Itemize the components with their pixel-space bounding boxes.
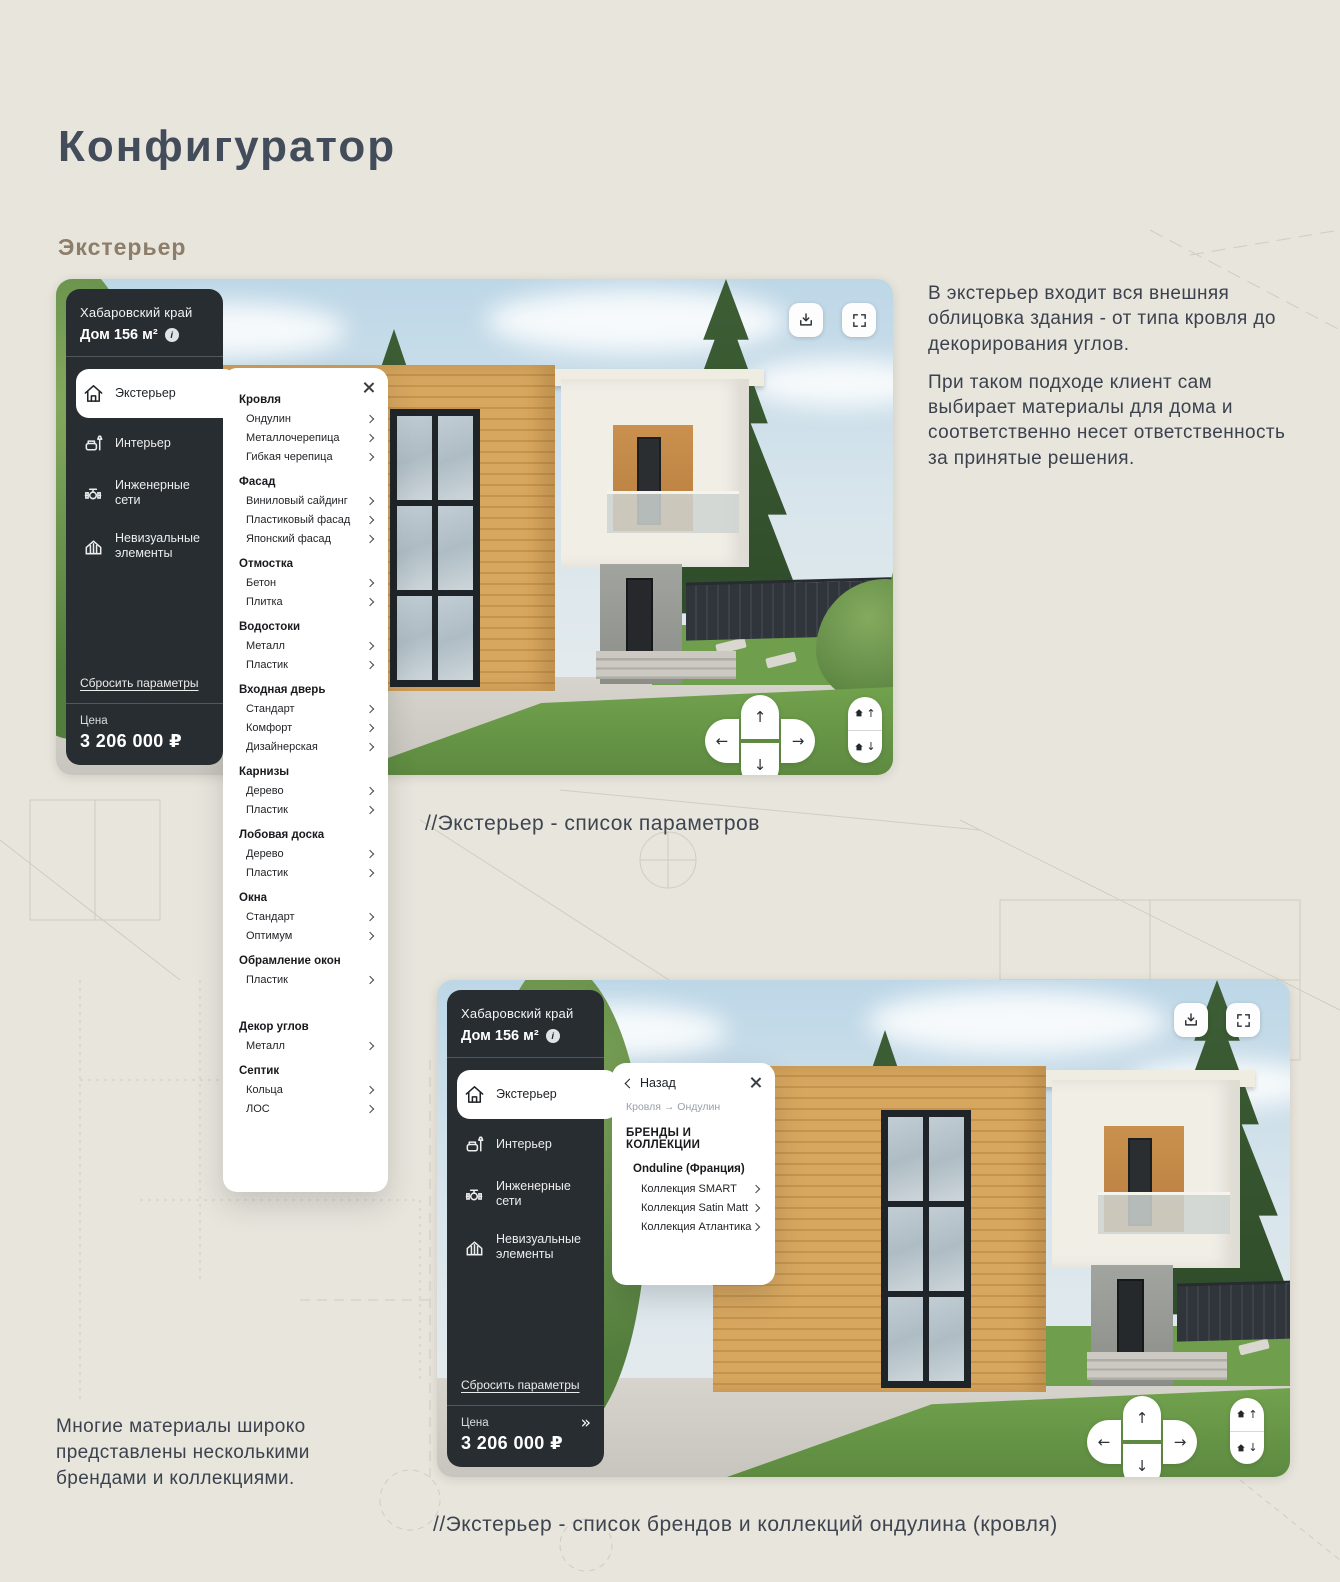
chevron-right-icon (366, 931, 374, 939)
chevron-right-icon (366, 433, 374, 441)
parameter-item-label: Металлочерепица (246, 432, 340, 444)
fullscreen-button[interactable] (842, 303, 876, 337)
left-arrow-icon: ← (716, 732, 729, 750)
brand-name: Onduline (Франция) (633, 1163, 761, 1175)
chevron-right-icon (366, 496, 374, 504)
sidebar-menu: ЭкстерьерИнтерьерИнженерные сетиНевизуал… (447, 1058, 604, 1271)
price-value: 3 206 000 ₽ (461, 1433, 590, 1454)
chevron-right-icon (366, 597, 374, 605)
parameter-item-label: Плитка (246, 596, 283, 608)
back-button[interactable]: Назад (626, 1076, 761, 1090)
parameter-item-label: Бетон (246, 577, 276, 589)
chevron-right-icon (366, 660, 374, 668)
parameter-section-title: Отмостка (239, 558, 375, 570)
chevron-right-icon (752, 1222, 760, 1230)
parameter-item[interactable]: Оптимум (239, 926, 375, 945)
chevron-right-icon (366, 912, 374, 920)
chevron-right-icon (366, 1085, 374, 1093)
entrance-steps (1087, 1352, 1227, 1380)
project-location: Хабаровский край (80, 305, 209, 320)
parameter-item[interactable]: Плитка (239, 592, 375, 611)
parameter-item-label: Дерево (246, 848, 284, 860)
floor-down-button[interactable]: ↓ (1230, 1431, 1264, 1465)
chevron-right-icon (366, 723, 374, 731)
chevron-right-icon (752, 1184, 760, 1192)
fullscreen-icon (1235, 1012, 1252, 1029)
presentation-page: Конфигуратор Экстерьер В экстерьер входи… (0, 0, 1340, 1582)
download-icon (797, 311, 815, 329)
house-icon (854, 742, 864, 752)
parameter-item[interactable]: Японский фасад (239, 529, 375, 548)
parameter-item[interactable]: Коллекция SMART (639, 1179, 761, 1198)
parameter-section-title: Входная дверь (239, 684, 375, 696)
parameter-item[interactable]: Стандарт (239, 699, 375, 718)
chevron-right-icon (366, 641, 374, 649)
floor-up-button[interactable]: ↑ (1230, 1398, 1264, 1431)
price-block: » Цена 3 206 000 ₽ (447, 1405, 604, 1467)
sidebar-menu-item[interactable]: Экстерьер (76, 369, 237, 418)
sidebar-menu-item[interactable]: Инженерные сети (457, 1170, 604, 1218)
parameter-item[interactable]: Пластик (239, 800, 375, 819)
price-value: 3 206 000 ₽ (80, 731, 209, 752)
house-window (390, 409, 480, 687)
parameters-list: КровляОндулинМеталлочерепицаГибкая череп… (239, 394, 375, 1118)
configurator-sidebar: Хабаровский край Дом 156 м² i ЭкстерьерИ… (447, 990, 604, 1467)
down-arrow-icon: ↓ (1248, 1441, 1257, 1454)
chevron-right-icon (366, 849, 374, 857)
reset-params-link[interactable]: Сбросить параметры (447, 1378, 604, 1405)
parameter-section-title: Кровля (239, 394, 375, 406)
chevron-right-icon (366, 1104, 374, 1112)
floor-up-button[interactable]: ↑ (848, 697, 882, 730)
parameter-item-label: Японский фасад (246, 533, 331, 545)
home-icon (463, 1083, 486, 1106)
fence (1177, 1272, 1290, 1341)
down-arrow-icon: ↓ (754, 756, 767, 774)
house-icon (1236, 1443, 1246, 1453)
up-arrow-icon: ↑ (1248, 1408, 1257, 1421)
project-header: Хабаровский край Дом 156 м² i (447, 990, 604, 1057)
parameter-item[interactable]: Пластиковый фасад (239, 510, 375, 529)
parameter-section-title: Декор углов (239, 1021, 375, 1033)
house-window (881, 1110, 971, 1388)
pan-left-button[interactable]: ← (1087, 1420, 1121, 1464)
parameter-item[interactable]: Пластик (239, 970, 375, 989)
sidebar-menu-item-label: Инженерные сети (115, 478, 217, 508)
pan-up-button[interactable]: ↑ (1123, 1396, 1161, 1440)
configurator-screenshot-1: ↑ ↓ ← → ↑ ↓ Хабаровский край (56, 279, 893, 775)
chevron-left-icon (625, 1078, 635, 1088)
parameter-item-label: Коллекция SMART (641, 1183, 737, 1195)
sidebar-menu-item[interactable]: Экстерьер (457, 1070, 618, 1119)
sidebar-menu-item-label: Инженерные сети (496, 1179, 598, 1209)
chevron-right-icon (366, 805, 374, 813)
parameter-item-label: Металл (246, 1040, 285, 1052)
parameter-item-label: Кольца (246, 1084, 283, 1096)
chevron-right-icon (366, 452, 374, 460)
section-subtitle: Экстерьер (58, 234, 186, 261)
floor-down-button[interactable]: ↓ (848, 730, 882, 764)
parameter-item-label: Пластик (246, 974, 288, 986)
chevron-right-icon (366, 578, 374, 586)
chevron-right-icon (366, 704, 374, 712)
info-icon[interactable]: i (165, 328, 179, 342)
project-house: Дом 156 м² i (80, 327, 209, 343)
down-arrow-icon: ↓ (1136, 1457, 1149, 1475)
right-arrow-icon: → (1174, 1433, 1187, 1451)
intro-paragraph-1: В экстерьер входит вся внешняя облицовка… (928, 281, 1288, 357)
sidebar-menu-item-label: Экстерьер (115, 386, 176, 401)
sidebar-menu-item[interactable]: Невизуальные элементы (457, 1223, 604, 1271)
price-label: Цена (80, 715, 209, 727)
valve-icon (82, 482, 105, 505)
parameter-item-label: Пластиковый фасад (246, 514, 350, 526)
pan-right-button[interactable]: → (781, 719, 815, 763)
parameter-item-label: Комфорт (246, 722, 292, 734)
brands-panel-title: БРЕНДЫ И КОЛЛЕКЦИИ (626, 1127, 761, 1151)
parameter-item[interactable]: Коллекция Satin Matt (639, 1198, 761, 1217)
project-location: Хабаровский край (461, 1006, 590, 1021)
house-icon (1236, 1409, 1246, 1419)
down-arrow-icon: ↓ (866, 740, 875, 753)
sidebar-menu-item[interactable]: Интерьер (457, 1124, 604, 1165)
parameter-item[interactable]: ЛОС (239, 1099, 375, 1118)
sidebar-menu-item-label: Невизуальные элементы (496, 1232, 598, 1262)
balcony-railing (1098, 1192, 1230, 1234)
parameter-item-label: Коллекция Атлантика (641, 1221, 751, 1233)
close-icon[interactable] (749, 1076, 762, 1089)
right-arrow-icon: → (792, 732, 805, 750)
back-label: Назад (640, 1076, 676, 1090)
armchair-icon (463, 1133, 486, 1156)
fullscreen-icon (851, 312, 868, 329)
project-header: Хабаровский край Дом 156 м² i (66, 289, 223, 356)
parameter-item[interactable]: Виниловый сайдинг (239, 491, 375, 510)
download-icon (1182, 1011, 1200, 1029)
valve-icon (463, 1183, 486, 1206)
price-block: Цена 3 206 000 ₽ (66, 703, 223, 765)
brands-panel: Назад Кровля → Ондулин БРЕНДЫ И КОЛЛЕКЦИ… (612, 1063, 775, 1285)
parameter-item-label: Виниловый сайдинг (246, 495, 348, 507)
fullscreen-button[interactable] (1226, 1003, 1260, 1037)
parameter-item-label: Оптимум (246, 930, 292, 942)
parameter-item[interactable]: Пластик (239, 655, 375, 674)
sidebar-menu-item-label: Невизуальные элементы (115, 531, 217, 561)
parameter-item-label: Дизайнерская (246, 741, 318, 753)
sidebar-menu-item-label: Интерьер (496, 1137, 552, 1152)
parameter-section-title: Лобовая доска (239, 829, 375, 841)
parameter-section-title: Фасад (239, 476, 375, 488)
camera-arrow-pad: ↑ ↓ ← → (1087, 1396, 1197, 1477)
parameter-item-label: Коллекция Satin Matt (641, 1202, 748, 1214)
sidebar-menu-item[interactable]: Невизуальные элементы (76, 522, 223, 570)
chevron-right-icon (366, 534, 374, 542)
sidebar-menu-item[interactable]: Инженерные сети (76, 469, 223, 517)
parameter-item-label: Ондулин (246, 413, 291, 425)
configurator-screenshot-2: ↑ ↓ ← → ↑ ↓ Хабаровский край (437, 980, 1290, 1477)
pan-left-button[interactable]: ← (705, 719, 739, 763)
parameter-item-label: Стандарт (246, 703, 295, 715)
caption-shot2: //Экстерьер - список брендов и коллекций… (433, 1513, 1058, 1537)
parameter-item[interactable]: Металл (239, 1036, 375, 1055)
parameter-item[interactable]: Бетон (239, 573, 375, 592)
white-volume (1052, 1080, 1240, 1268)
white-volume (561, 379, 749, 567)
price-label: Цена (461, 1417, 590, 1429)
parameter-item[interactable]: Пластик (239, 863, 375, 882)
intro-paragraph-2: При таком подходе клиент сам выбирает ма… (928, 370, 1288, 471)
left-arrow-icon: ← (1098, 1433, 1111, 1451)
download-button[interactable] (789, 303, 823, 337)
home-icon (82, 382, 105, 405)
parameter-item[interactable]: Металл (239, 636, 375, 655)
chevron-right-icon (366, 786, 374, 794)
project-house: Дом 156 м² i (461, 1028, 590, 1044)
up-arrow-icon: ↑ (754, 708, 767, 726)
collections-list: Коллекция SMARTКоллекция Satin MattКолле… (639, 1179, 761, 1236)
parameter-item[interactable]: Стандарт (239, 907, 375, 926)
parameter-section-title: Водостоки (239, 621, 375, 633)
parameter-item[interactable]: Дерево (239, 844, 375, 863)
chevron-right-icon (366, 1041, 374, 1049)
up-arrow-icon: ↑ (1136, 1409, 1149, 1427)
parameter-section-title: Обрамление окон (239, 955, 375, 967)
entrance-steps (596, 651, 736, 679)
parameter-item-label: Дерево (246, 785, 284, 797)
camera-arrow-pad: ↑ ↓ ← → (705, 695, 815, 775)
parameter-item-label: Стандарт (246, 911, 295, 923)
breadcrumb: Кровля → Ондулин (626, 1101, 761, 1113)
caption-shot1: //Экстерьер - список параметров (425, 812, 760, 836)
sidebar-menu-item-label: Экстерьер (496, 1087, 557, 1102)
parameter-item-label: Металл (246, 640, 285, 652)
parameter-item-label: ЛОС (246, 1103, 270, 1115)
pan-down-button[interactable]: ↓ (741, 743, 779, 775)
balcony-railing (607, 491, 739, 533)
fence-icon (82, 535, 105, 558)
pan-right-button[interactable]: → (1163, 1420, 1197, 1464)
sidebar-menu-item[interactable]: Интерьер (76, 423, 223, 464)
parameter-item[interactable]: Кольца (239, 1080, 375, 1099)
note-text: Многие материалы широко представлены нес… (56, 1414, 396, 1493)
intro-text: В экстерьер входит вся внешняя облицовка… (928, 281, 1288, 471)
pan-down-button[interactable]: ↓ (1123, 1444, 1161, 1477)
chevron-right-icon (366, 414, 374, 422)
parameter-item-label: Гибкая черепица (246, 451, 333, 463)
chevron-right-icon (366, 975, 374, 983)
parameter-item[interactable]: Комфорт (239, 718, 375, 737)
chevron-right-icon (366, 742, 374, 750)
download-button[interactable] (1174, 1003, 1208, 1037)
pan-up-button[interactable]: ↑ (741, 695, 779, 739)
configurator-sidebar: Хабаровский край Дом 156 м² i ЭкстерьерИ… (66, 289, 223, 765)
collapse-panel-icon[interactable]: » (581, 1413, 591, 1433)
parameter-section-title: Карнизы (239, 766, 375, 778)
parameter-item-label: Пластик (246, 867, 288, 879)
parameters-panel: КровляОндулинМеталлочерепицаГибкая череп… (223, 368, 388, 1192)
floor-switcher: ↑ ↓ (1230, 1398, 1264, 1464)
sidebar-menu-item-label: Интерьер (115, 436, 171, 451)
chevron-right-icon (366, 515, 374, 523)
parameter-item[interactable]: Коллекция Атлантика (639, 1217, 761, 1236)
parameter-item[interactable]: Металлочерепица (239, 428, 375, 447)
floor-switcher: ↑ ↓ (848, 697, 882, 763)
parameter-section-title: Окна (239, 892, 375, 904)
chevron-right-icon (752, 1203, 760, 1211)
parameter-section-title: Септик (239, 1065, 375, 1077)
parameter-item[interactable]: Дерево (239, 781, 375, 800)
house-icon (854, 708, 864, 718)
info-icon[interactable]: i (546, 1029, 560, 1043)
armchair-icon (82, 432, 105, 455)
close-icon[interactable] (362, 381, 375, 394)
parameter-item[interactable]: Ондулин (239, 409, 375, 428)
page-title: Конфигуратор (58, 122, 396, 172)
fence-icon (463, 1236, 486, 1259)
up-arrow-icon: ↑ (866, 707, 875, 720)
parameter-item-label: Пластик (246, 659, 288, 671)
chevron-right-icon (366, 868, 374, 876)
sidebar-menu: ЭкстерьерИнтерьерИнженерные сетиНевизуал… (66, 357, 223, 570)
parameter-item[interactable]: Гибкая черепица (239, 447, 375, 466)
reset-params-link[interactable]: Сбросить параметры (66, 676, 223, 703)
parameter-item-label: Пластик (246, 804, 288, 816)
parameter-item[interactable]: Дизайнерская (239, 737, 375, 756)
